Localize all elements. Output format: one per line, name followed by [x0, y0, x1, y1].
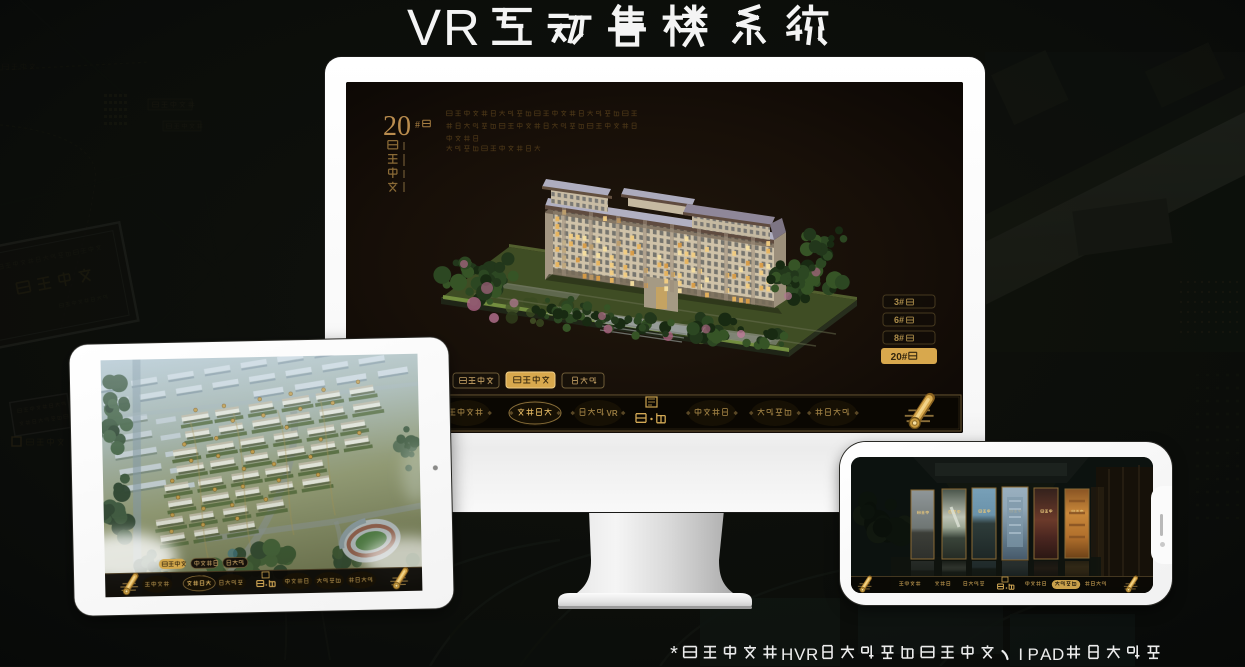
svg-text:H: H — [781, 645, 793, 664]
svg-text:3#: 3# — [894, 297, 904, 307]
svg-text:I: I — [1018, 645, 1023, 664]
svg-text:V: V — [794, 645, 806, 664]
svg-text:D: D — [1052, 645, 1064, 664]
svg-text:P: P — [1028, 645, 1039, 664]
svg-text:6#: 6# — [894, 315, 904, 325]
svg-text:8#: 8# — [894, 333, 904, 343]
svg-text:*: * — [670, 643, 678, 665]
svg-text:20#: 20# — [891, 352, 908, 363]
svg-text:VR: VR — [407, 0, 482, 56]
svg-text:VR: VR — [607, 409, 618, 418]
svg-text:#: # — [415, 120, 420, 131]
svg-text:20: 20 — [383, 111, 411, 142]
svg-text:R: R — [806, 645, 818, 664]
svg-text:A: A — [1040, 645, 1052, 664]
